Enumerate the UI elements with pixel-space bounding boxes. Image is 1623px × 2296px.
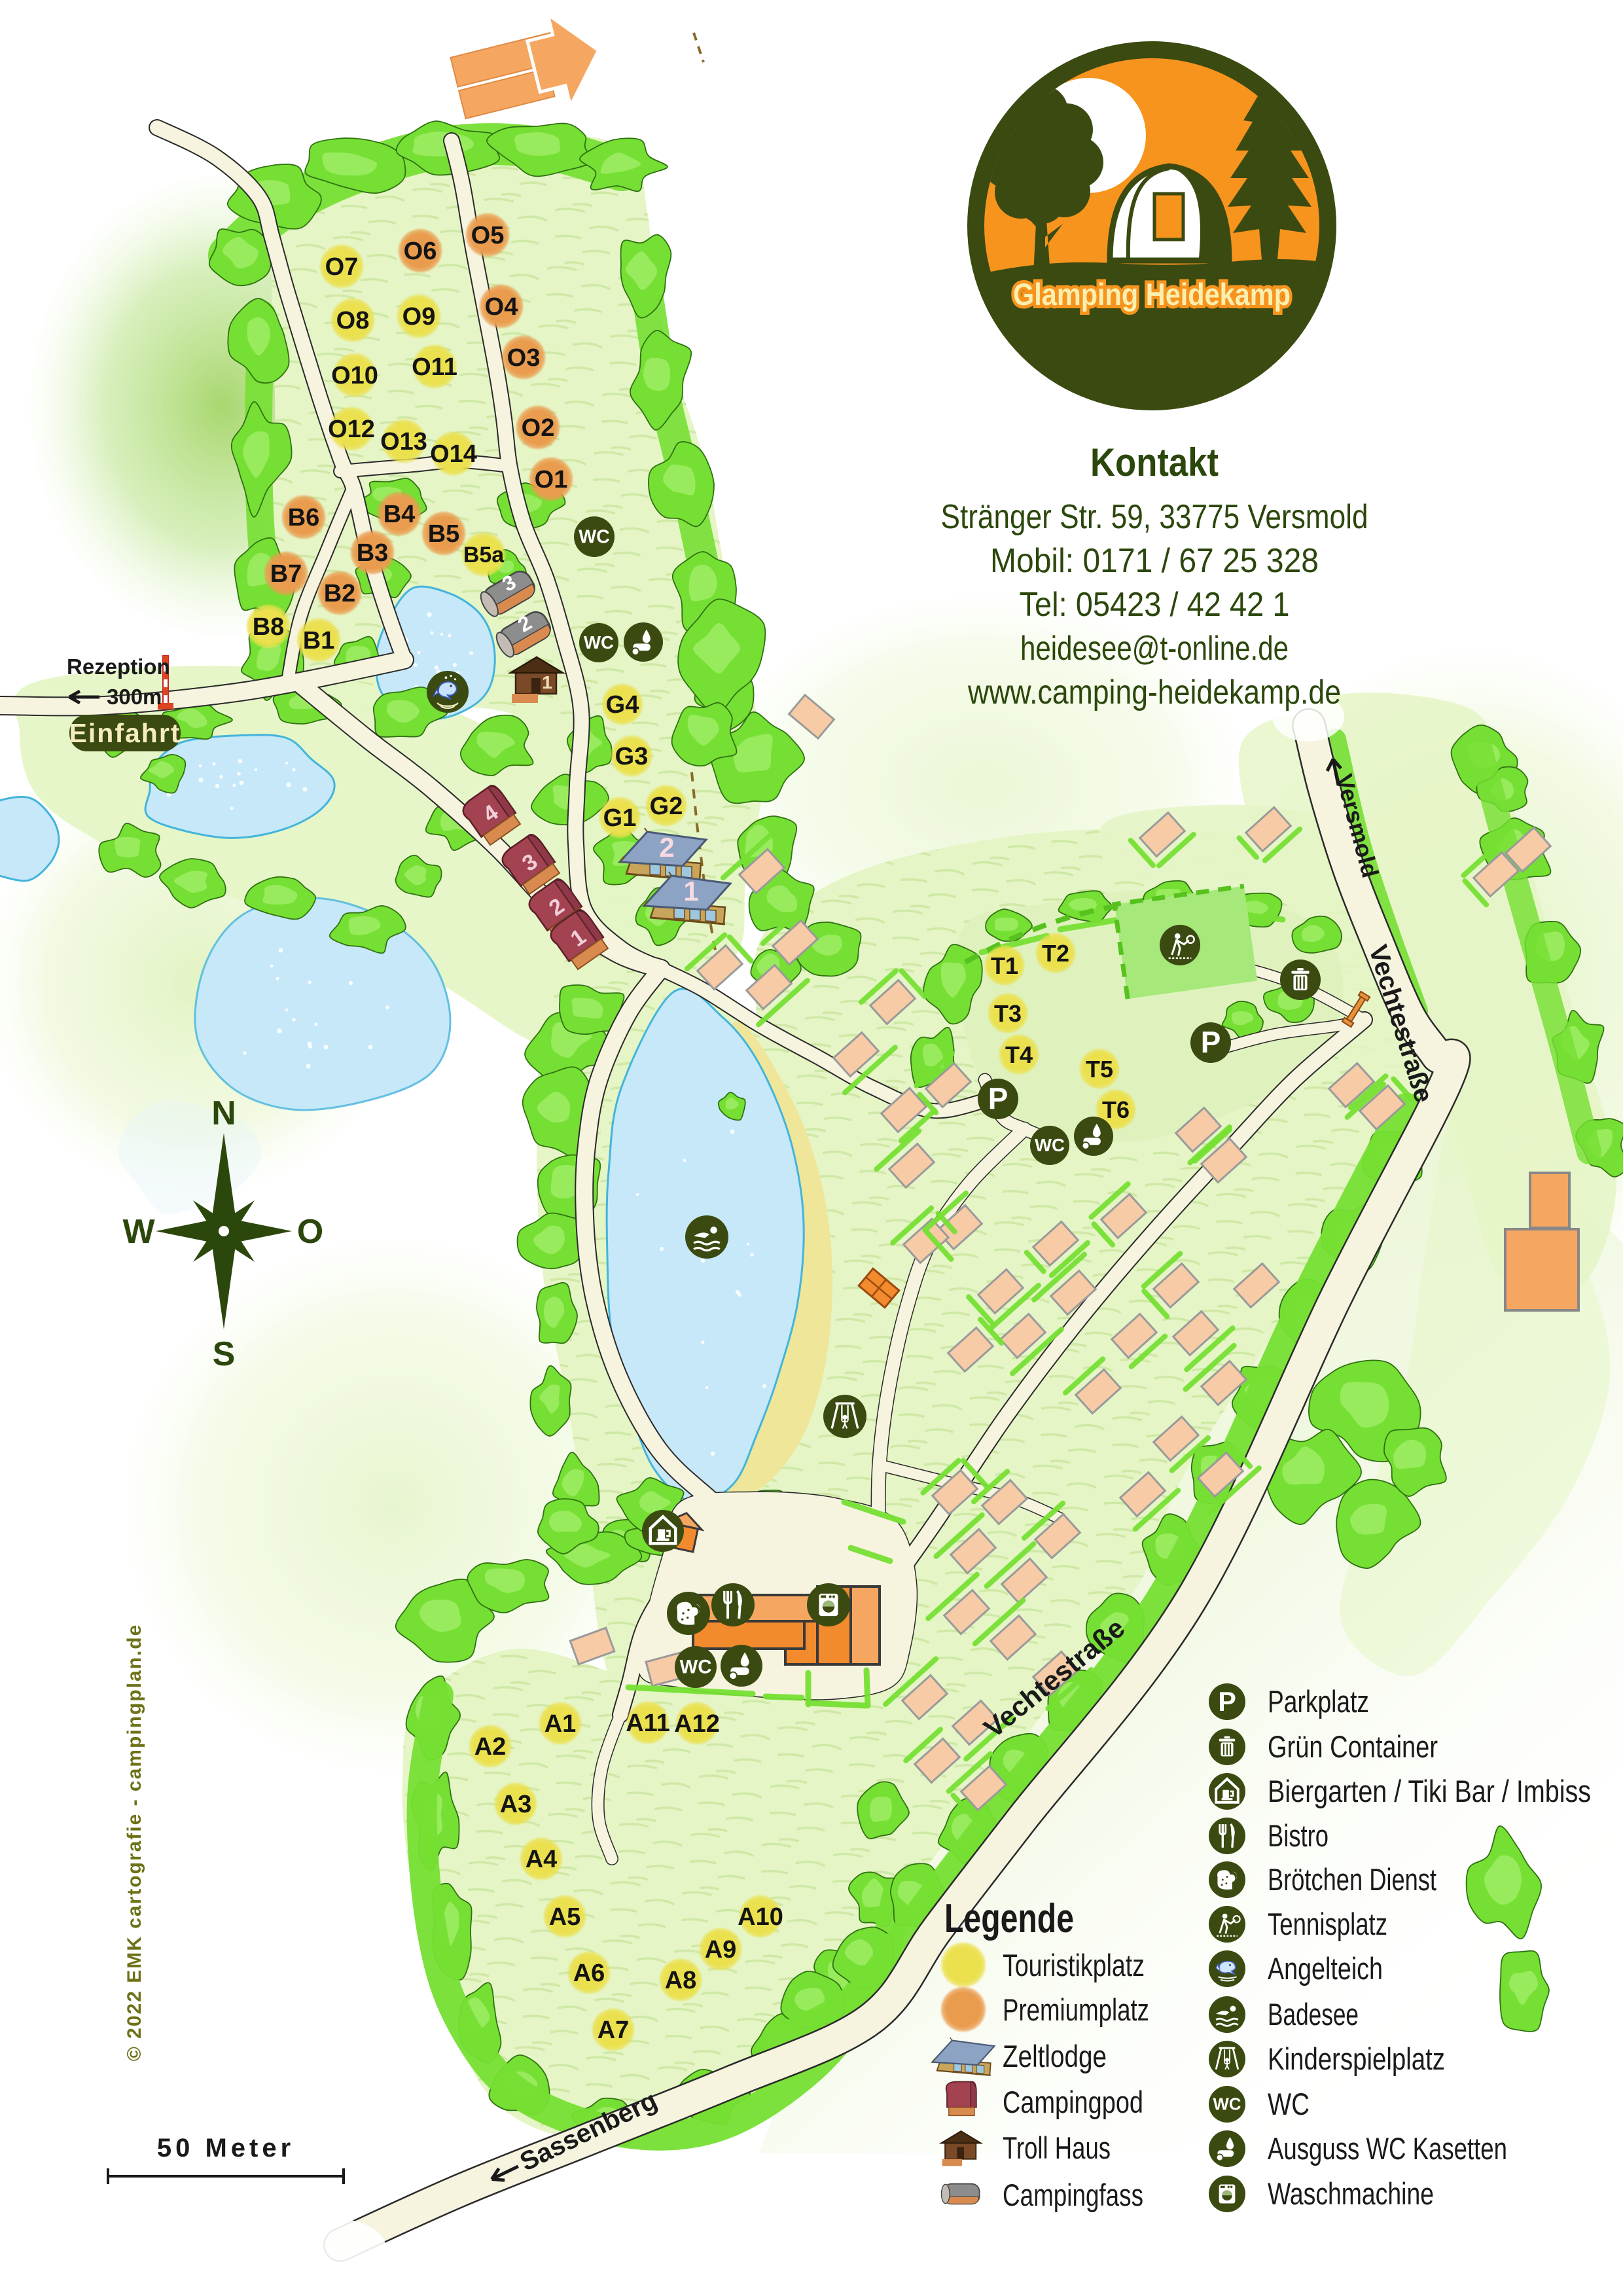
svg-text:B5a: B5a	[463, 543, 505, 567]
svg-text:O4: O4	[485, 293, 518, 321]
svg-text:1: 1	[542, 672, 552, 692]
svg-text:Touristikplatz: Touristikplatz	[1003, 1948, 1145, 1982]
svg-text:WC: WC	[679, 1657, 711, 1678]
svg-text:Angelteich: Angelteich	[1268, 1951, 1383, 1986]
svg-text:O: O	[297, 1213, 323, 1251]
svg-text:A5: A5	[549, 1903, 581, 1931]
svg-text:Waschmachine: Waschmachine	[1268, 2176, 1434, 2211]
svg-text:Mobil: 0171 / 67 25 328: Mobil: 0171 / 67 25 328	[990, 542, 1319, 580]
svg-text:Badesee: Badesee	[1268, 1997, 1359, 2032]
svg-text:S: S	[213, 1335, 236, 1373]
svg-text:O2: O2	[522, 414, 555, 442]
svg-text:Rezeption: Rezeption	[67, 655, 170, 679]
svg-text:Stränger Str. 59, 33775 Versmo: Stränger Str. 59, 33775 Versmold	[941, 498, 1368, 536]
svg-text:O14: O14	[430, 440, 477, 468]
svg-text:Glamping Heidekamp: Glamping Heidekamp	[1013, 277, 1291, 312]
svg-text:O5: O5	[471, 222, 505, 249]
svg-text:P: P	[1218, 1686, 1236, 1717]
svg-text:Troll Haus: Troll Haus	[1003, 2130, 1111, 2165]
svg-text:A7: A7	[597, 2017, 630, 2044]
svg-text:B6: B6	[288, 504, 320, 531]
svg-text:Campingfass: Campingfass	[1003, 2178, 1143, 2212]
svg-text:Ausguss WC Kasetten: Ausguss WC Kasetten	[1268, 2131, 1507, 2166]
svg-text:B4: B4	[383, 501, 416, 528]
svg-text:O8: O8	[336, 307, 370, 334]
svg-text:Bistro: Bistro	[1268, 1818, 1329, 1853]
svg-text:WC: WC	[1268, 2087, 1310, 2121]
svg-text:B5: B5	[428, 520, 460, 548]
svg-text:A6: A6	[573, 1960, 605, 1987]
svg-text:O11: O11	[412, 353, 457, 381]
svg-text:P: P	[1201, 1026, 1221, 1060]
svg-text:T4: T4	[1005, 1041, 1033, 1068]
svg-text:B8: B8	[253, 613, 285, 641]
svg-text:N: N	[211, 1094, 236, 1132]
svg-text:B3: B3	[357, 539, 389, 567]
svg-text:O6: O6	[404, 238, 437, 265]
svg-text:O10: O10	[331, 362, 378, 389]
svg-text:O7: O7	[325, 253, 359, 281]
svg-text:G2: G2	[650, 793, 683, 820]
svg-text:WC: WC	[584, 632, 614, 653]
svg-text:G4: G4	[606, 691, 639, 719]
svg-text:2: 2	[659, 832, 674, 863]
svg-text:WC: WC	[1213, 2095, 1241, 2113]
svg-text:Campingpod: Campingpod	[1003, 2085, 1143, 2119]
svg-text:Parkplatz: Parkplatz	[1268, 1684, 1369, 1719]
svg-text:A8: A8	[665, 1967, 697, 1994]
svg-text:O3: O3	[507, 344, 541, 372]
svg-text:heidesee@t-online.de: heidesee@t-online.de	[1020, 630, 1289, 668]
svg-text:T1: T1	[991, 952, 1018, 979]
svg-text:www.camping-heidekamp.de: www.camping-heidekamp.de	[967, 673, 1341, 711]
svg-text:P: P	[988, 1082, 1008, 1116]
svg-text:T6: T6	[1102, 1096, 1130, 1123]
svg-text:Biergarten / Tiki Bar / Imbiss: Biergarten / Tiki Bar / Imbiss	[1268, 1774, 1591, 1808]
svg-text:W: W	[122, 1213, 155, 1251]
svg-text:Kontakt: Kontakt	[1090, 440, 1219, 484]
svg-text:Einfahrt: Einfahrt	[69, 718, 181, 748]
svg-text:Premiumplatz: Premiumplatz	[1003, 1992, 1149, 2027]
svg-text:O1: O1	[535, 466, 568, 493]
svg-text:Grün Container: Grün Container	[1268, 1729, 1438, 1764]
svg-text:T3: T3	[994, 1000, 1022, 1027]
svg-text:A9: A9	[705, 1936, 737, 1964]
svg-text:B7: B7	[270, 560, 302, 588]
svg-text:A11: A11	[626, 1710, 670, 1737]
svg-text:Tel: 05423 / 42 42 1: Tel: 05423 / 42 42 1	[1020, 586, 1290, 624]
svg-text:T2: T2	[1042, 940, 1069, 967]
svg-text:B2: B2	[324, 580, 356, 607]
svg-text:Kinderspielplatz: Kinderspielplatz	[1268, 2041, 1445, 2076]
svg-text:O12: O12	[328, 416, 375, 443]
svg-text:A3: A3	[500, 1791, 532, 1818]
svg-text:A10: A10	[738, 1903, 783, 1931]
svg-text:G1: G1	[603, 804, 637, 832]
svg-text:A1: A1	[544, 1710, 577, 1738]
svg-text:© 2022 EMK cartografie - campi: © 2022 EMK cartografie - campingplan.de	[124, 1624, 145, 2062]
svg-text:A12: A12	[674, 1710, 720, 1738]
svg-text:WC: WC	[1035, 1135, 1065, 1155]
svg-text:Brötchen Dienst: Brötchen Dienst	[1268, 1862, 1436, 1897]
svg-text:Legende: Legende	[944, 1896, 1074, 1941]
svg-text:Tennisplatz: Tennisplatz	[1268, 1907, 1387, 1941]
svg-text:B1: B1	[303, 627, 335, 655]
svg-text:Zeltlodge: Zeltlodge	[1003, 2039, 1107, 2073]
svg-text:300m: 300m	[107, 685, 162, 709]
svg-text:O9: O9	[402, 303, 436, 331]
svg-text:O13: O13	[380, 428, 427, 456]
svg-text:A4: A4	[526, 1846, 558, 1873]
svg-text:WC: WC	[579, 526, 610, 547]
svg-text:50 Meter: 50 Meter	[157, 2134, 294, 2162]
svg-text:1: 1	[683, 876, 698, 906]
svg-text:A2: A2	[474, 1733, 507, 1761]
svg-text:T5: T5	[1086, 1056, 1113, 1083]
svg-text:G3: G3	[615, 743, 649, 770]
